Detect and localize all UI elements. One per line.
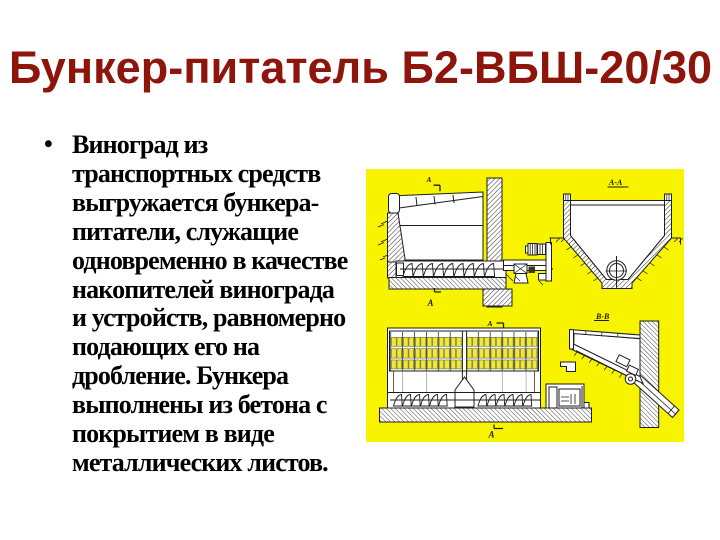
svg-text:А: А xyxy=(426,175,432,184)
svg-text:В-В: В-В xyxy=(595,312,610,321)
svg-text:А: А xyxy=(427,298,434,308)
svg-text:А-А: А-А xyxy=(608,178,623,187)
svg-text:А: А xyxy=(488,430,495,440)
svg-text:А: А xyxy=(487,319,493,328)
